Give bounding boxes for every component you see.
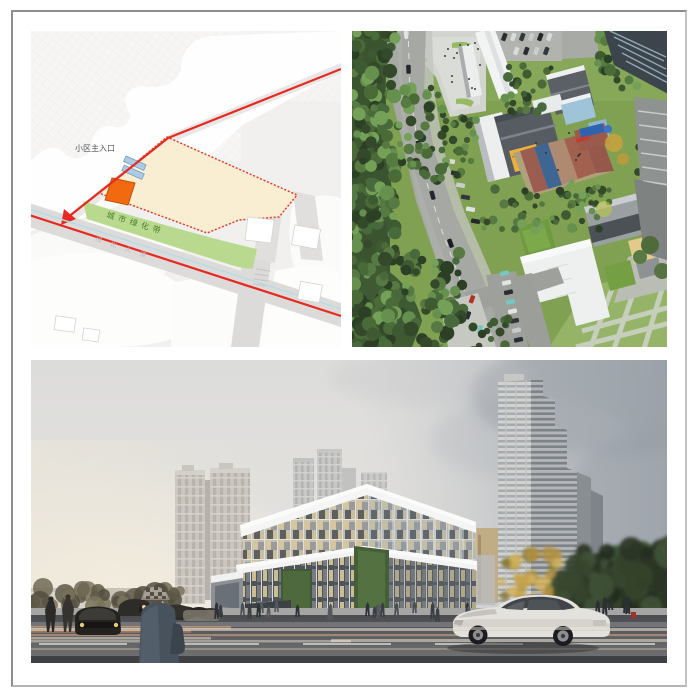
svg-text:小区主入口: 小区主入口 <box>75 143 115 153</box>
